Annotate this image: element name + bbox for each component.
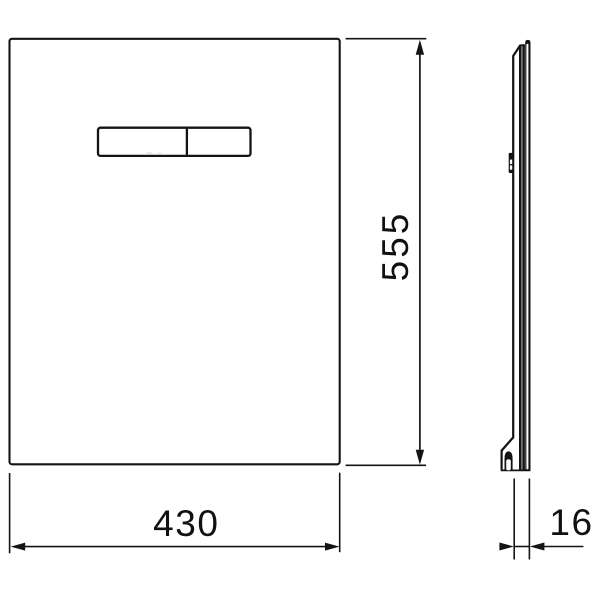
svg-text:430: 430: [153, 503, 219, 544]
svg-text:555: 555: [375, 211, 416, 282]
svg-text:16: 16: [549, 502, 593, 543]
